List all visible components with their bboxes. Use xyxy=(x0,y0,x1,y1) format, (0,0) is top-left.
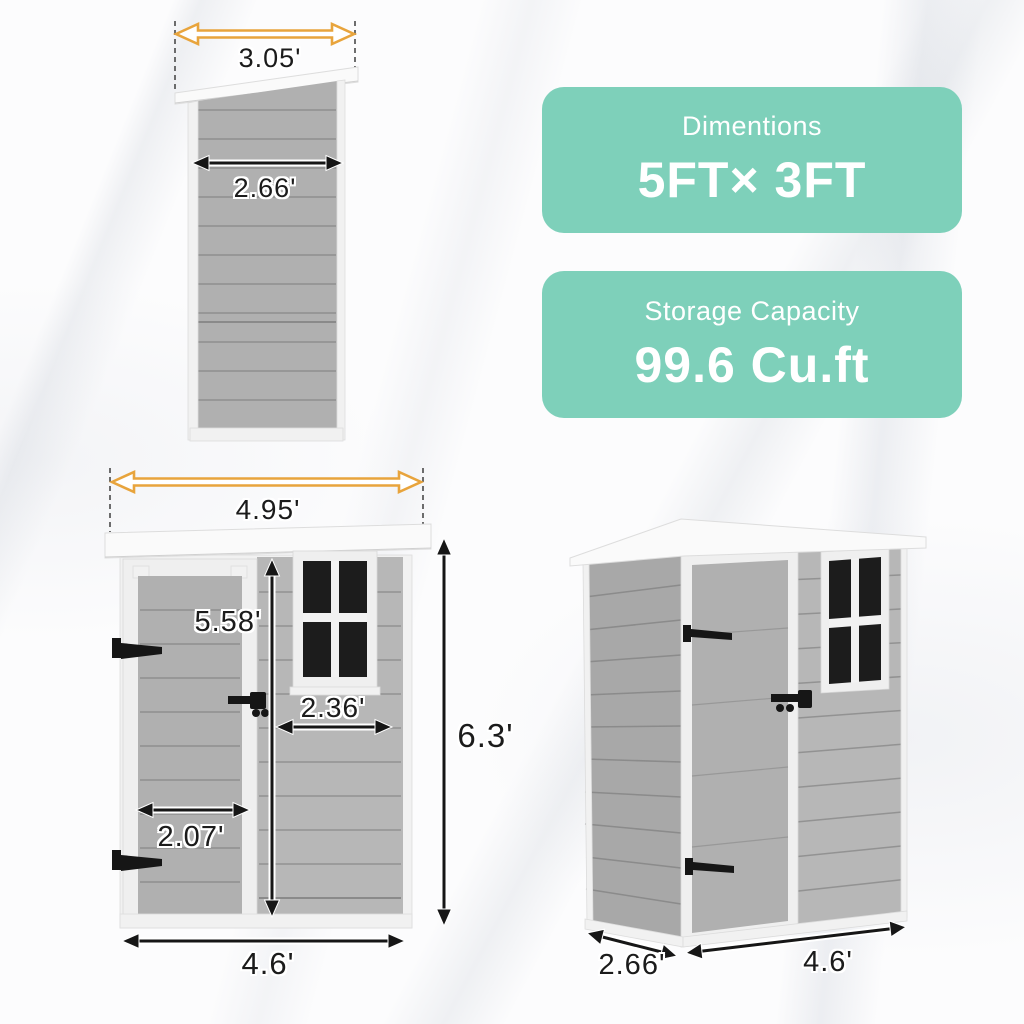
front-base-width-label: 4.6' xyxy=(203,946,333,982)
perspective-door xyxy=(692,560,788,933)
capacity-card-value: 99.6 Cu.ft xyxy=(634,336,869,394)
side-view: 3.05' 2.66' xyxy=(100,15,370,460)
dimensions-card-title: Dimentions xyxy=(682,111,822,142)
dimensions-card: Dimentions 5FT× 3FT xyxy=(542,87,962,233)
front-overall-height-label: 6.3' xyxy=(438,717,533,755)
front-door-width-label: 2.07' xyxy=(126,821,256,854)
front-roof-width-label: 4.95' xyxy=(203,494,333,526)
product-dimension-diagram: 3.05' 2.66' Dimentions 5FT× 3FT Storage … xyxy=(0,0,1024,1024)
side-body-width-label: 2.66' xyxy=(200,173,330,204)
perspective-window xyxy=(821,548,889,693)
front-view: 4.95' 5.58' 2.36' 2.07' 6.3' 4.6' xyxy=(100,462,520,987)
perspective-view-illustration xyxy=(555,495,975,995)
perspective-width-label: 4.6' xyxy=(763,946,893,979)
roof-width-arrow xyxy=(112,472,421,492)
front-door-height-label: 5.58' xyxy=(163,606,293,639)
front-window xyxy=(290,551,380,695)
roof-width-arrow xyxy=(176,24,354,44)
side-right-trim xyxy=(337,80,345,440)
perspective-depth-label: 2.66' xyxy=(567,949,697,982)
capacity-card-title: Storage Capacity xyxy=(644,296,859,327)
side-view-illustration xyxy=(100,15,370,460)
right-edge-trim xyxy=(901,541,907,917)
perspective-view: 2.66' 4.6' xyxy=(555,495,975,995)
side-wall xyxy=(198,81,337,435)
side-left-trim xyxy=(188,101,198,440)
side-base xyxy=(190,428,343,441)
perspective-side-wall xyxy=(583,549,683,943)
front-window-width-label: 2.36' xyxy=(268,692,398,724)
dimensions-card-value: 5FT× 3FT xyxy=(638,151,867,209)
capacity-card: Storage Capacity 99.6 Cu.ft xyxy=(542,271,962,418)
front-base xyxy=(120,914,412,928)
side-roof-width-label: 3.05' xyxy=(205,43,335,74)
